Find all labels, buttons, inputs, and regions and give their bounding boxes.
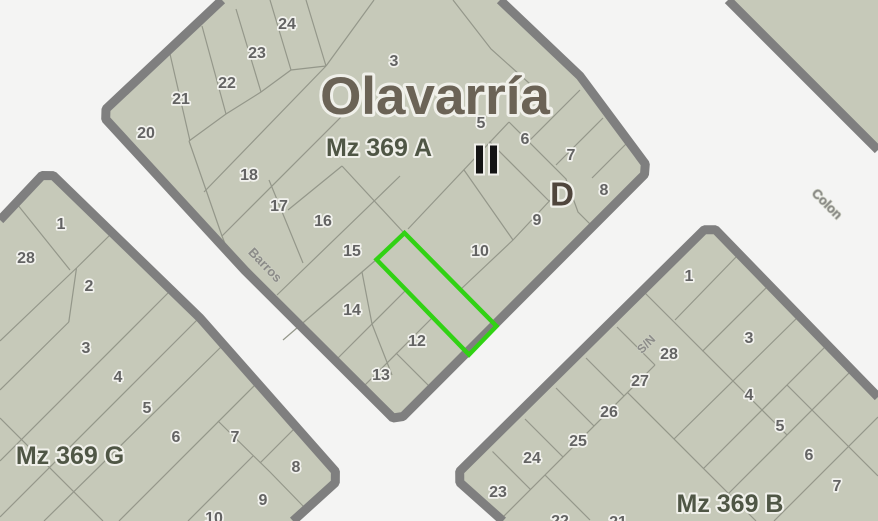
svg-text:15: 15 xyxy=(343,243,361,260)
svg-text:8: 8 xyxy=(292,459,301,476)
svg-text:Mz 369 A: Mz 369 A xyxy=(326,134,432,162)
svg-text:22: 22 xyxy=(551,513,569,521)
svg-text:21: 21 xyxy=(609,514,627,521)
svg-text:Mz 369 G: Mz 369 G xyxy=(16,442,124,470)
svg-text:1: 1 xyxy=(685,268,694,285)
svg-text:21: 21 xyxy=(172,91,190,108)
svg-text:5: 5 xyxy=(477,115,486,132)
svg-text:3: 3 xyxy=(745,330,754,347)
svg-text:7: 7 xyxy=(231,429,240,446)
svg-text:28: 28 xyxy=(17,250,35,267)
svg-text:Mz 369 B: Mz 369 B xyxy=(677,490,784,518)
svg-text:5: 5 xyxy=(776,418,785,435)
svg-text:2: 2 xyxy=(85,278,94,295)
svg-text:23: 23 xyxy=(489,484,507,501)
svg-text:25: 25 xyxy=(569,433,587,450)
svg-text:24: 24 xyxy=(523,450,541,467)
svg-text:17: 17 xyxy=(270,198,288,215)
svg-text:16: 16 xyxy=(314,213,332,230)
svg-text:10: 10 xyxy=(205,510,223,521)
svg-text:6: 6 xyxy=(172,429,181,446)
svg-text:14: 14 xyxy=(343,302,361,319)
svg-text:5: 5 xyxy=(143,400,152,417)
svg-text:27: 27 xyxy=(631,373,649,390)
svg-text:6: 6 xyxy=(805,447,814,464)
svg-text:10: 10 xyxy=(471,243,489,260)
svg-text:20: 20 xyxy=(137,125,155,142)
svg-text:13: 13 xyxy=(372,367,390,384)
svg-text:3: 3 xyxy=(82,340,91,357)
svg-text:9: 9 xyxy=(533,212,542,229)
svg-text:4: 4 xyxy=(745,387,754,404)
svg-text:6: 6 xyxy=(521,131,530,148)
svg-text:1: 1 xyxy=(57,216,66,233)
svg-text:28: 28 xyxy=(660,346,678,363)
svg-text:3: 3 xyxy=(390,53,399,70)
svg-text:12: 12 xyxy=(408,333,426,350)
svg-text:24: 24 xyxy=(278,16,296,33)
svg-text:18: 18 xyxy=(240,167,258,184)
svg-text:7: 7 xyxy=(833,478,842,495)
svg-text:22: 22 xyxy=(218,75,236,92)
svg-text:Olavarría: Olavarría xyxy=(320,67,550,126)
svg-text:23: 23 xyxy=(248,45,266,62)
svg-text:9: 9 xyxy=(259,492,268,509)
svg-text:7: 7 xyxy=(567,147,576,164)
svg-text:D: D xyxy=(550,176,574,213)
svg-text:26: 26 xyxy=(600,404,618,421)
svg-text:8: 8 xyxy=(600,182,609,199)
svg-text:4: 4 xyxy=(114,369,123,386)
